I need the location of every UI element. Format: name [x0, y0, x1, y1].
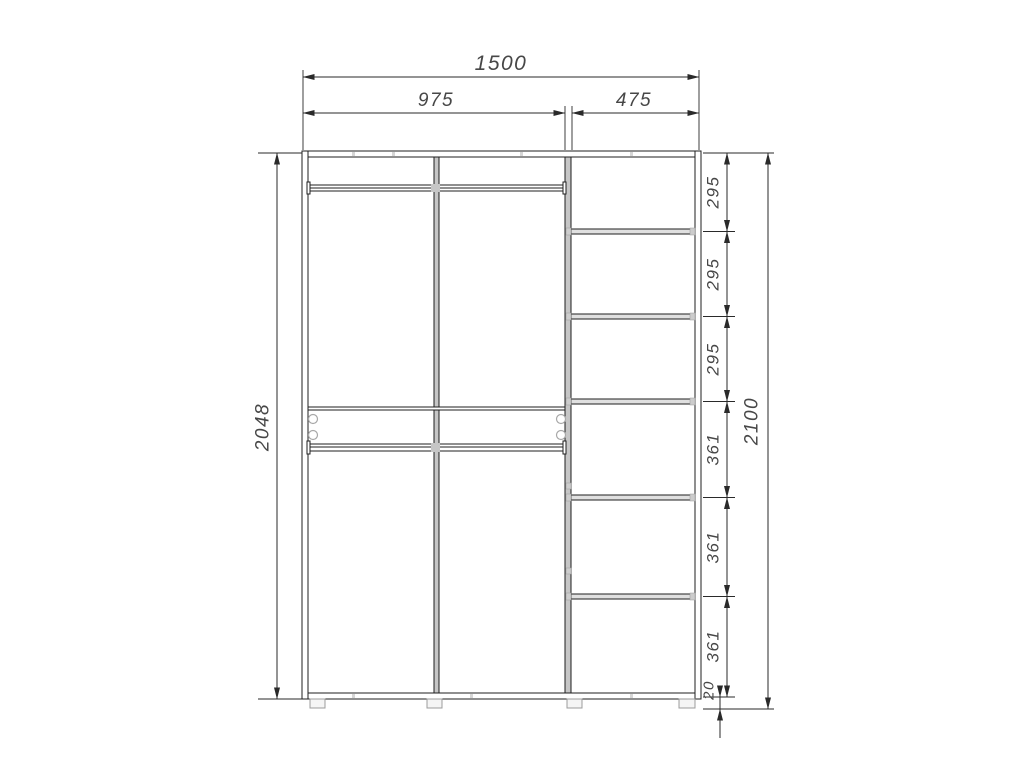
left-side-panel [302, 151, 308, 699]
dim-total-height: 2100 [742, 153, 769, 709]
shelf-5 [571, 594, 695, 599]
wardrobe-dimension-drawing: 1500 975 475 2048 2100 295 295 295 361 3… [0, 0, 1024, 768]
dim-section-5-label: 361 [704, 531, 723, 564]
dim-total-width-label: 1500 [475, 52, 528, 75]
dim-base-height-label: 20 [701, 680, 718, 701]
top-panel [302, 151, 701, 157]
dim-left-section-width: 975 [303, 90, 565, 113]
foot-icon [567, 699, 582, 708]
dim-right-section-width-label: 475 [616, 90, 652, 111]
shelf-4 [571, 495, 695, 500]
rail-bracket-icon [307, 441, 310, 454]
shelf-2 [571, 314, 695, 319]
dim-cabinet-height: 2048 [253, 153, 278, 699]
dim-total-height-label: 2100 [742, 397, 763, 446]
dim-section-6-label: 361 [704, 630, 723, 663]
rail-bracket-icon [563, 182, 566, 194]
bottom-panel [302, 693, 701, 699]
left-section-divider [434, 157, 439, 693]
dim-section-2-label: 295 [704, 258, 723, 292]
foot-icon [427, 699, 442, 708]
main-vertical-divider [565, 157, 571, 693]
drawing-canvas: 1500 975 475 2048 2100 295 295 295 361 3… [0, 0, 1024, 768]
dim-shelf-sections: 295 295 295 361 361 361 [704, 153, 728, 697]
dim-section-1-label: 295 [704, 176, 723, 210]
left-middle-shelf [308, 407, 565, 410]
adjustable-feet [310, 699, 695, 708]
dim-total-width: 1500 [303, 52, 699, 77]
shelf-connectors [566, 228, 695, 600]
dim-section-4-label: 361 [704, 433, 723, 466]
dim-cabinet-height-label: 2048 [253, 403, 274, 452]
rail-bracket-icon [563, 441, 566, 454]
right-side-panel [695, 151, 701, 699]
rail-bracket-icon [307, 182, 310, 194]
right-section-shelves [566, 228, 695, 600]
shelf-3 [571, 399, 695, 404]
foot-icon [679, 699, 695, 708]
dim-left-section-width-label: 975 [418, 90, 454, 111]
shelf-1 [571, 229, 695, 234]
dim-section-3-label: 295 [704, 343, 723, 377]
foot-icon [310, 699, 325, 708]
dim-right-section-width: 475 [572, 90, 699, 113]
